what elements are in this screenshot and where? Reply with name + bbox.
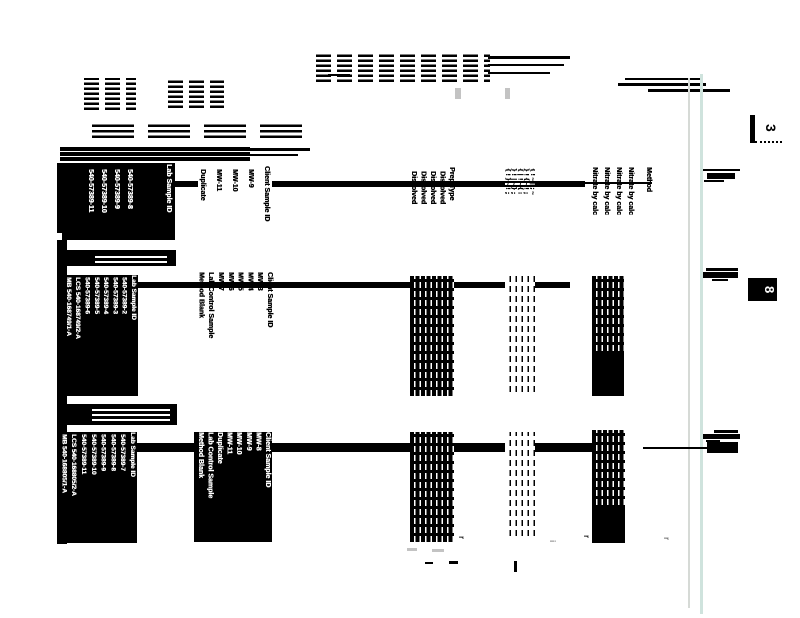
- tab-edge-bar: [750, 115, 755, 143]
- table2-lab-sample-id-column: Lab Sample ID 540-57389-2540-57389-3540-…: [60, 275, 138, 396]
- column-header: Lab Sample ID: [129, 275, 138, 396]
- lab-sample-id: 540-57389-3: [110, 277, 119, 396]
- table3-prep-column-degraded: [410, 432, 454, 542]
- table2-method-column-degraded: [592, 276, 624, 351]
- scan-noise-blob: [162, 78, 224, 108]
- table1-lab-sample-id-column: Lab Sample ID 540-57389-8540-57389-9540-…: [67, 163, 175, 240]
- header-rule-extension: [643, 447, 707, 449]
- client-sample-id: MW-9: [242, 169, 258, 242]
- scan-artifact-line: [328, 74, 350, 76]
- client-sample-id: Lab Control Sample: [205, 432, 215, 542]
- header-rule-end-block: [707, 442, 738, 453]
- scan-artifact-line: [449, 561, 458, 564]
- client-sample-id: MW-11: [224, 432, 234, 542]
- client-sample-id: Lab Control Sample: [205, 272, 215, 394]
- scan-speck: [455, 88, 461, 99]
- client-sample-id: MW-4: [245, 272, 255, 394]
- table2-method-column-degraded: [592, 351, 624, 396]
- client-sample-id: Method Blank: [195, 432, 205, 542]
- prep-type: Dissolved: [409, 171, 419, 239]
- table1-method-column: Method Nitrate by calcNitrate by calcNit…: [586, 167, 654, 240]
- scan-artifact-line: [618, 83, 706, 86]
- page-number: 3: [757, 115, 779, 141]
- scan-artifact-line: [514, 561, 517, 572]
- date-illegible: {|!~{:: [516, 168, 522, 238]
- scan-artifact-line: [704, 180, 724, 182]
- prep-type: Dissolved: [418, 171, 428, 239]
- scan-artifact-line: [488, 56, 570, 59]
- column-header: Lab Sample ID: [127, 432, 137, 543]
- table1-client-sample-id-column: Client Sample ID MW-9MW-10MW-11Duplicate: [192, 166, 274, 242]
- client-sample-id: MW-3: [254, 272, 264, 394]
- lab-sample-id: 540-57389-10: [88, 434, 98, 543]
- column-header: Prep Type: [447, 167, 457, 239]
- scan-artifact-line: [703, 272, 738, 278]
- table2-prep-column-degraded: [410, 276, 454, 396]
- column-header: Client Sample ID: [262, 432, 272, 542]
- date-illegible: {!}~!;: [504, 168, 510, 238]
- client-sample-id: MW-5: [235, 272, 245, 394]
- lab-sample-id: LCS 540-168805/2-A: [68, 434, 78, 543]
- lab-sample-id: 540-57389-2: [119, 277, 128, 396]
- left-edge-bar-notch: [57, 233, 62, 240]
- scan-residual-glyph: r: [582, 535, 591, 538]
- table3-client-sample-id-column: Client Sample ID MW-8MW-9MW-10MW-11Dupli…: [194, 432, 272, 542]
- lab-sample-id: 540-57389-10: [97, 169, 110, 240]
- date-illegible: }!{~!;: [522, 168, 528, 238]
- column-header: Method: [642, 167, 654, 240]
- scan-artifact-line: [707, 173, 735, 179]
- lab-sample-id: 540-57389-11: [84, 169, 97, 240]
- table3-method-column-degraded: [592, 505, 625, 543]
- scan-noise-stripes: [92, 407, 170, 421]
- client-sample-id: Duplicate: [194, 169, 210, 242]
- client-sample-id: MW-10: [234, 432, 244, 542]
- lab-sample-id: 540-57389-11: [78, 434, 88, 543]
- client-sample-id: MW-11: [210, 169, 226, 242]
- table3-date-column-degraded: [505, 432, 535, 540]
- lab-sample-id: MB 540-168749/1-A: [64, 277, 73, 396]
- scan-noise-blob: [78, 78, 136, 110]
- lab-sample-id: 540-57389-8: [123, 169, 136, 240]
- lab-sample-id: 540-57389-4: [101, 277, 110, 396]
- scan-artifact-line: [712, 279, 728, 281]
- table1-prep-type-column: Prep Type DissolvedDissolvedDissolvedDis…: [408, 167, 456, 239]
- scan-residual-glyph: i: [548, 540, 557, 542]
- table2-client-sample-id-column: Client Sample ID MW-3MW-4MW-5MW-6MW-7Lab…: [194, 272, 274, 394]
- scan-noise-blob: [310, 52, 490, 82]
- scan-artifact-line: [703, 169, 740, 171]
- client-sample-id: Method Blank: [196, 272, 206, 394]
- header-rule-thick: [57, 443, 623, 452]
- prep-type: Dissolved: [437, 171, 447, 239]
- lab-sample-id: 540-57389-7: [117, 434, 127, 543]
- scan-artifact-line: [425, 562, 433, 564]
- column-header: Client Sample ID: [258, 166, 274, 242]
- table2-date-column-degraded: [505, 276, 535, 396]
- scan-noise-lines: [92, 123, 310, 138]
- lab-sample-id: 540-57389-9: [110, 169, 123, 240]
- scan-artifact-line: [488, 64, 564, 66]
- scanned-lab-report-page: 3 8 Lab Sample ID 540-57389-8540-57389-9…: [0, 0, 800, 618]
- client-sample-id: MW-6: [225, 272, 235, 394]
- scan-speck: [432, 549, 444, 552]
- client-sample-id: MW-10: [226, 169, 242, 242]
- lab-sample-id: MB 540-168805/1-A: [59, 434, 69, 543]
- scanner-edge-line: [700, 74, 703, 614]
- lab-sample-id: 540-57389-9: [98, 434, 108, 543]
- scan-artifact-line: [488, 72, 550, 74]
- scan-residual-glyph: r: [662, 537, 671, 540]
- method-name: Nitrate by calc: [600, 167, 612, 240]
- client-sample-id: Duplicate: [214, 432, 224, 542]
- method-name: Nitrate by calc: [624, 167, 636, 240]
- method-name: Nitrate by calc: [612, 167, 624, 240]
- tab-dotted-rule: [755, 141, 782, 143]
- table3-lab-sample-id-column: Lab Sample ID 540-57389-7540-57389-8540-…: [57, 432, 137, 543]
- scan-noise-stripes: [95, 253, 167, 263]
- column-header: Client Sample ID: [264, 272, 274, 394]
- prep-type: Dissolved: [428, 171, 438, 239]
- scan-artifact-line: [706, 268, 738, 271]
- scan-artifact-line: [240, 148, 310, 151]
- lab-sample-id: LCS 540-168749/2-A: [73, 277, 82, 396]
- page-number: 8: [762, 286, 777, 293]
- client-sample-id: MW-8: [253, 432, 263, 542]
- lab-sample-id: 540-57389-6: [82, 277, 91, 396]
- scan-speck: [407, 548, 417, 551]
- table1-date-column-illegible: {!~|;~}!{~!;{|!~{:}!|~};{!}~!;: [503, 168, 535, 238]
- scan-artifact-line: [714, 430, 738, 433]
- table3-method-column-degraded: [592, 430, 625, 505]
- scan-speck: [505, 88, 510, 99]
- scanner-edge-line: [688, 78, 690, 608]
- method-name: Nitrate by calc: [588, 167, 600, 240]
- lab-sample-id: 540-57389-5: [92, 277, 101, 396]
- scan-noise-bar: [60, 146, 250, 161]
- page-tab-8: 8: [748, 278, 777, 301]
- page-tab-3: 3: [750, 115, 780, 143]
- column-header: Lab Sample ID: [162, 164, 175, 240]
- client-sample-id: MW-9: [243, 432, 253, 542]
- lab-sample-id: 540-57389-8: [108, 434, 118, 543]
- scan-residual-glyph: r: [457, 536, 466, 539]
- scan-artifact-line: [703, 434, 740, 439]
- scan-artifact-line: [240, 154, 298, 156]
- client-sample-id: MW-7: [215, 272, 225, 394]
